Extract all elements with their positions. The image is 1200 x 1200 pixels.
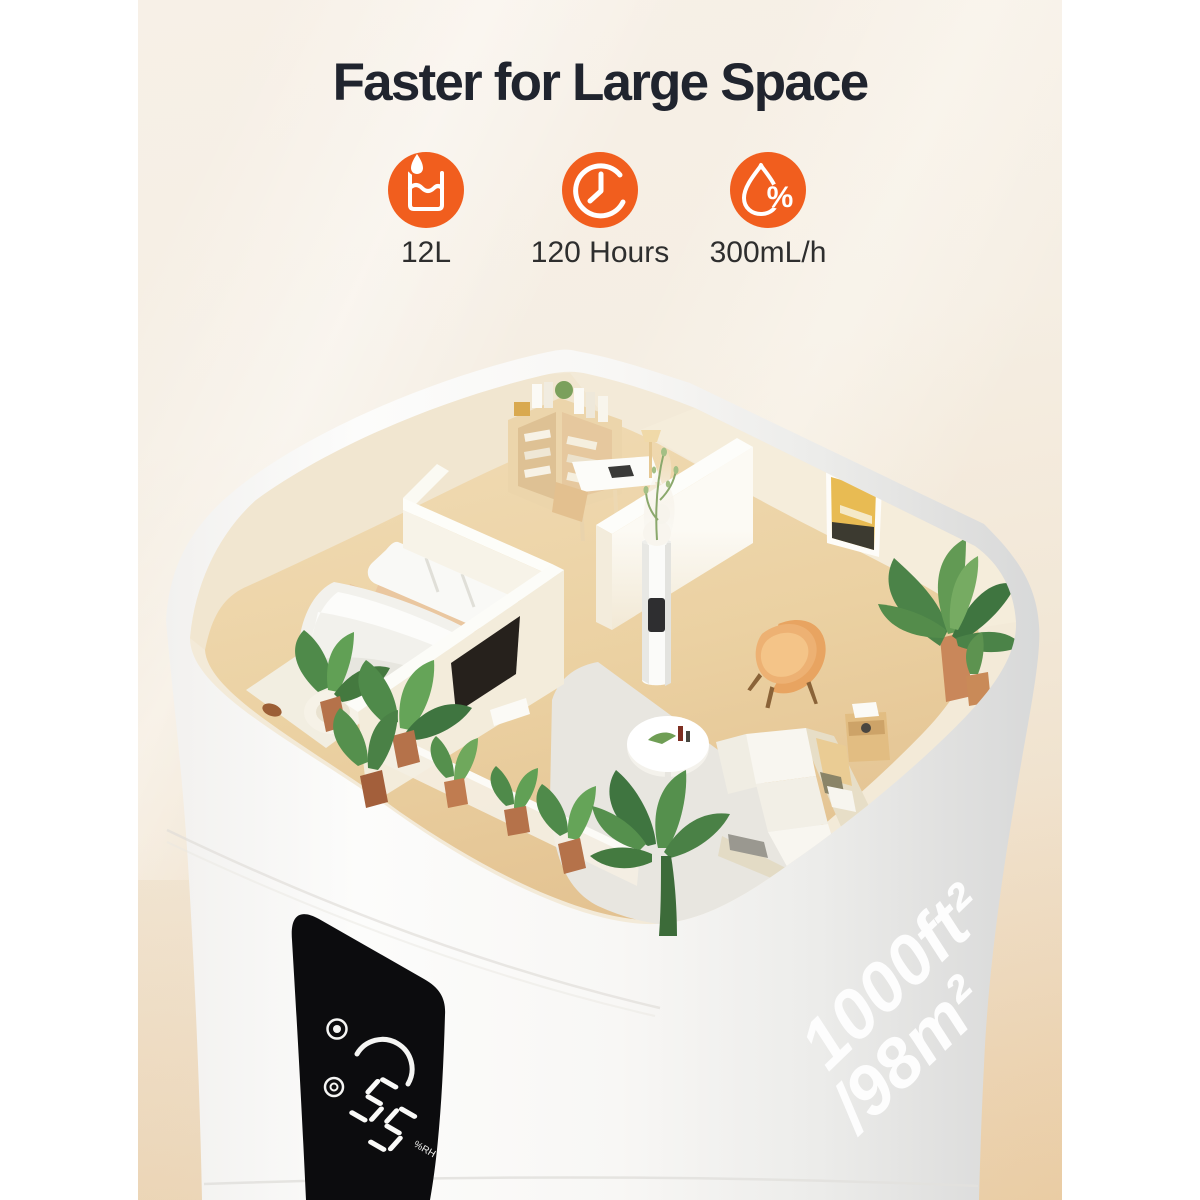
svg-text:%: % <box>767 181 794 214</box>
